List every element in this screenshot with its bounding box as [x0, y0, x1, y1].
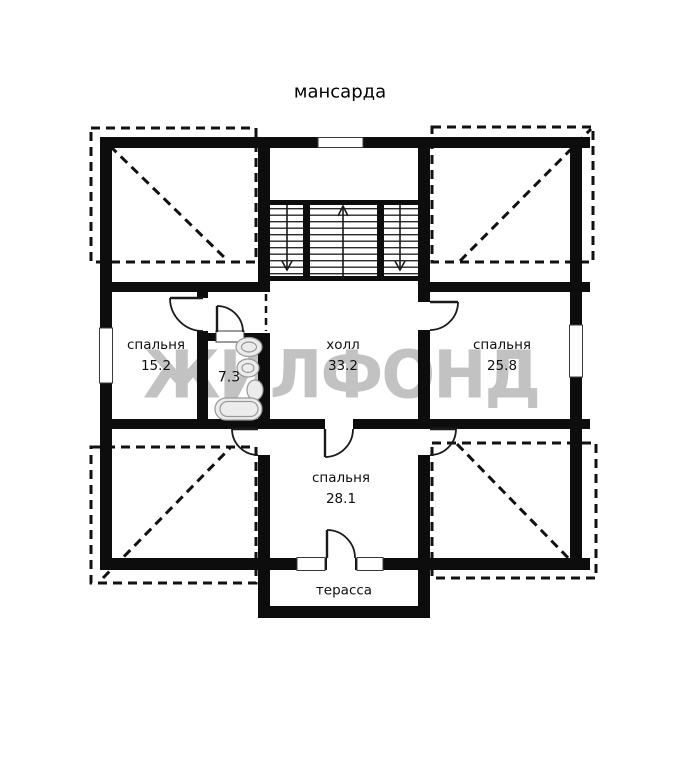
- room-label-bedroom-28: спальня 28.1: [312, 468, 370, 510]
- room-area: 15.2: [127, 356, 185, 377]
- room-name: спальня: [473, 335, 531, 356]
- door-bathroom: [217, 306, 243, 332]
- room-label-bedroom-25: спальня 25.8: [473, 335, 531, 377]
- room-area: 25.8: [473, 356, 531, 377]
- room-name: холл: [326, 335, 360, 356]
- bidet-icon: [247, 380, 263, 400]
- staircase: [270, 200, 418, 281]
- room-area: 28.1: [312, 489, 370, 510]
- floor-plan-page: ЖИЛФОНД: [0, 0, 688, 768]
- bathtub-icon: [215, 398, 262, 420]
- room-name: спальня: [127, 335, 185, 356]
- room-label-terrace: терасса: [316, 581, 372, 602]
- door-bedroom-25: [430, 302, 458, 330]
- room-area: 7.3: [218, 368, 240, 389]
- door-attic-left: [232, 429, 258, 455]
- room-area: 33.2: [326, 356, 360, 377]
- sink-icon: [237, 359, 259, 377]
- room-label-bedroom-15: спальня 15.2: [127, 335, 185, 377]
- toilet-icon: [236, 338, 262, 357]
- door-bedroom-28: [325, 429, 353, 457]
- floor-plan-drawing: [0, 0, 688, 768]
- window-top: [318, 138, 363, 148]
- room-label-hall: холл 33.2: [326, 335, 360, 377]
- window-terrace-left: [297, 558, 325, 571]
- room-name: терасса: [316, 581, 372, 602]
- room-label-bathroom: 7.3: [218, 368, 240, 389]
- window-left: [100, 328, 113, 383]
- floor-title: мансарда: [294, 82, 386, 103]
- door-terrace: [327, 530, 355, 558]
- window-right: [570, 325, 583, 377]
- room-name: спальня: [312, 468, 370, 489]
- window-terrace-right: [357, 558, 383, 571]
